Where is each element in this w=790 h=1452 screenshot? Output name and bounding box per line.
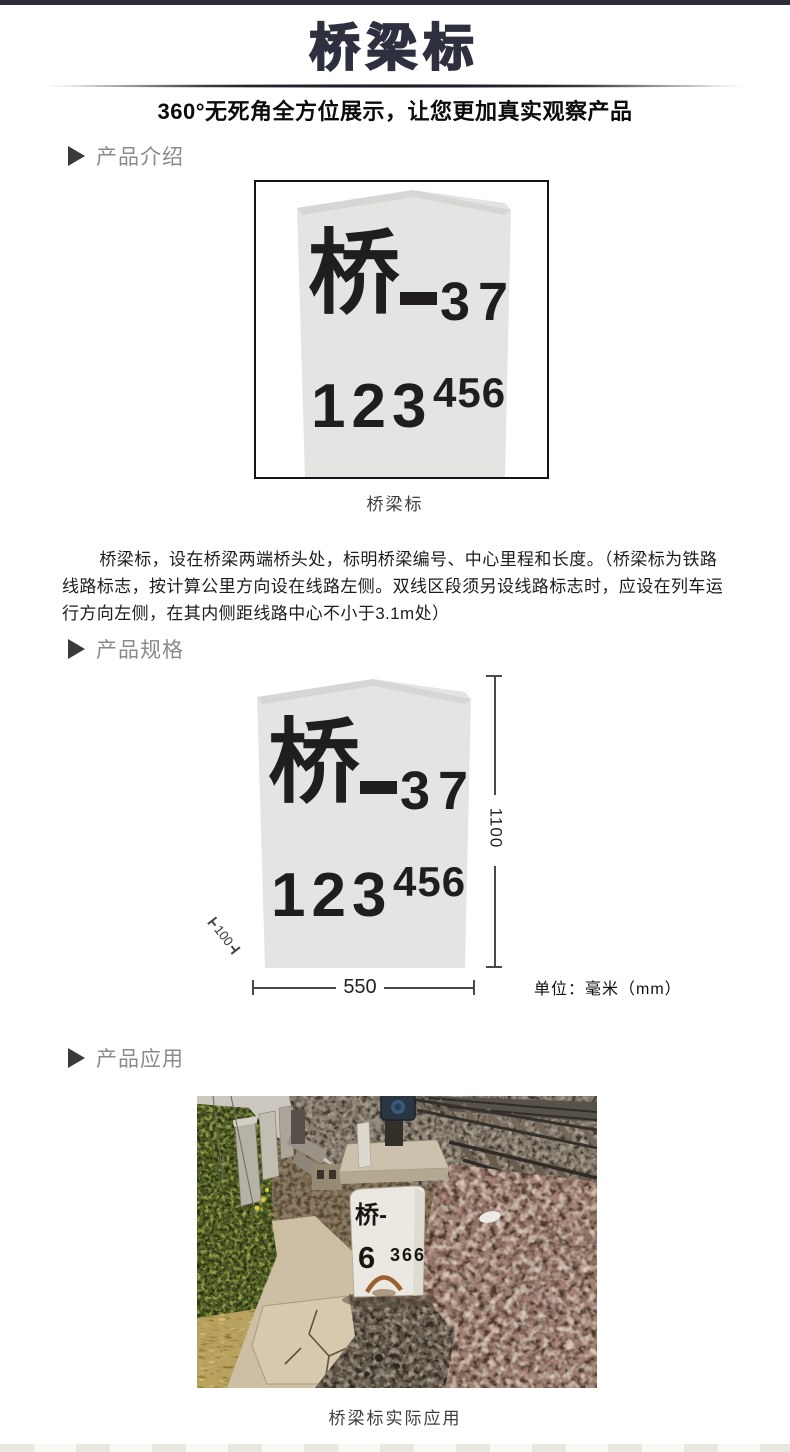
stone-dash: — (400, 292, 437, 305)
stone-char: 桥 (308, 228, 400, 320)
stone-dash: — (360, 781, 397, 794)
photo-stone-digit: 6 (358, 1240, 375, 1275)
stone-serial: 37 (440, 275, 516, 329)
triangle-right-icon (68, 146, 85, 166)
photo-stone-digits-small: 366 (390, 1245, 426, 1265)
next-section-image-edge (0, 1444, 790, 1452)
intro-marker-figure: 桥 — 37 123 456 (254, 180, 549, 479)
application-photo: 桥- 6 366 (197, 1096, 597, 1388)
spec-diagram: 桥 — 37 123 456 1100 550 100 单位：毫米（mm） (200, 660, 680, 1010)
section-header-intro: 产品介绍 (68, 141, 184, 171)
triangle-right-icon (68, 1048, 85, 1068)
stone-mileage-sup: 456 (433, 372, 506, 414)
stone-mileage-sup: 456 (393, 861, 466, 903)
side-dim-label: 100 (206, 915, 242, 956)
section-label: 产品规格 (96, 634, 184, 664)
height-dim-cap-bottom (486, 966, 502, 968)
height-dim-line (494, 866, 496, 968)
page-subtitle: 360°无死角全方位展示，让您更加真实观察产品 (0, 94, 790, 126)
signal-mast (291, 1110, 305, 1144)
railway-scene: 桥- 6 366 (197, 1096, 597, 1388)
height-dim-line (494, 675, 496, 795)
height-dim-label: 1100 (474, 800, 516, 856)
marker-stone-drawing: 桥 — 37 123 456 (293, 186, 515, 479)
width-dim-cap-right (473, 980, 475, 995)
section-header-specs: 产品规格 (68, 634, 184, 664)
marker-stone-drawing: 桥 — 37 123 456 (253, 675, 475, 968)
product-detail-page: 桥梁标 360°无死角全方位展示，让您更加真实观察产品 产品介绍 桥 — 37 … (0, 0, 790, 1452)
photo-stone-text-line1: 桥- (355, 1202, 387, 1229)
stone-mileage-main: 123 (271, 865, 392, 927)
triangle-right-icon (68, 639, 85, 659)
width-dim-line (252, 987, 336, 989)
unit-label: 单位：毫米（mm） (534, 975, 680, 999)
section-label: 产品介绍 (96, 141, 184, 171)
width-dim-label: 550 (336, 976, 384, 999)
section-header-application: 产品应用 (68, 1043, 184, 1073)
stone-char: 桥 (268, 717, 360, 809)
product-description: 桥梁标，设在桥梁两端桥头处，标明桥梁编号、中心里程和长度。（桥梁标为铁路线路标志… (62, 546, 730, 627)
title-divider (45, 84, 745, 88)
page-title: 桥梁标 (0, 21, 790, 76)
application-photo-caption: 桥梁标实际应用 (0, 1404, 790, 1429)
stone-serial: 37 (400, 764, 476, 818)
width-dim-line (384, 987, 475, 989)
intro-figure-caption: 桥梁标 (0, 490, 790, 515)
top-accent-bar (0, 0, 790, 5)
section-label: 产品应用 (96, 1043, 184, 1073)
stone-mileage-main: 123 (311, 376, 432, 438)
